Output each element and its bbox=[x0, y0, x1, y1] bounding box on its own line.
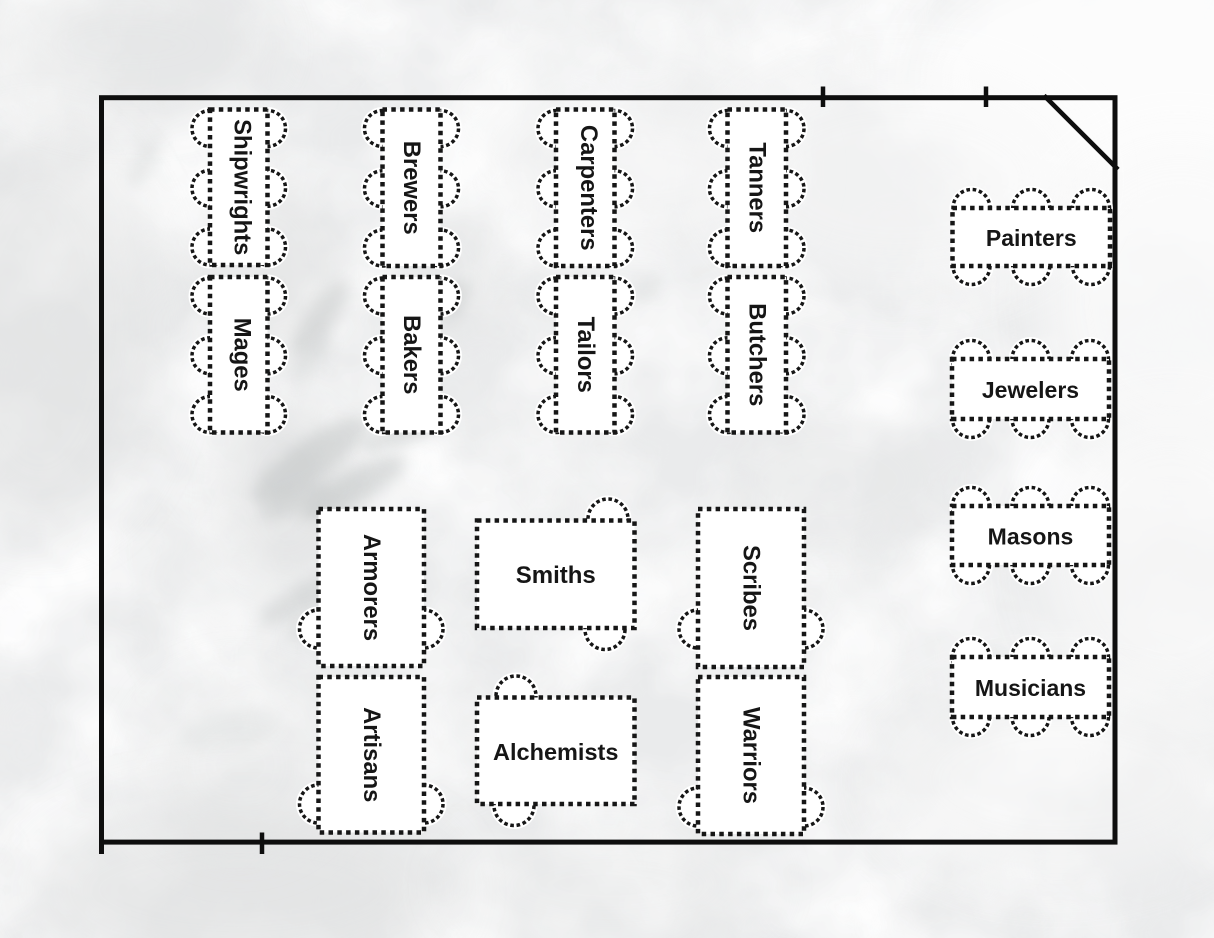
svg-text:Alchemists: Alchemists bbox=[493, 739, 618, 765]
svg-text:Painters: Painters bbox=[986, 225, 1077, 251]
svg-text:Jewelers: Jewelers bbox=[982, 377, 1079, 403]
svg-text:Brewers: Brewers bbox=[398, 141, 425, 235]
svg-text:Smiths: Smiths bbox=[516, 562, 596, 589]
svg-text:Musicians: Musicians bbox=[975, 675, 1086, 701]
svg-text:Bakers: Bakers bbox=[398, 315, 425, 394]
svg-text:Warriors: Warriors bbox=[738, 707, 765, 804]
svg-text:Butchers: Butchers bbox=[743, 303, 770, 406]
svg-text:Masons: Masons bbox=[988, 524, 1074, 550]
svg-text:Mages: Mages bbox=[228, 318, 255, 392]
svg-text:Tanners: Tanners bbox=[743, 142, 770, 233]
svg-text:Shipwrights: Shipwrights bbox=[228, 119, 255, 255]
svg-text:Carpenters: Carpenters bbox=[575, 125, 602, 251]
svg-text:Tailors: Tailors bbox=[572, 317, 599, 393]
svg-text:Armorers: Armorers bbox=[358, 534, 385, 641]
svg-text:Scribes: Scribes bbox=[738, 545, 765, 631]
svg-text:Artisans: Artisans bbox=[358, 707, 385, 802]
